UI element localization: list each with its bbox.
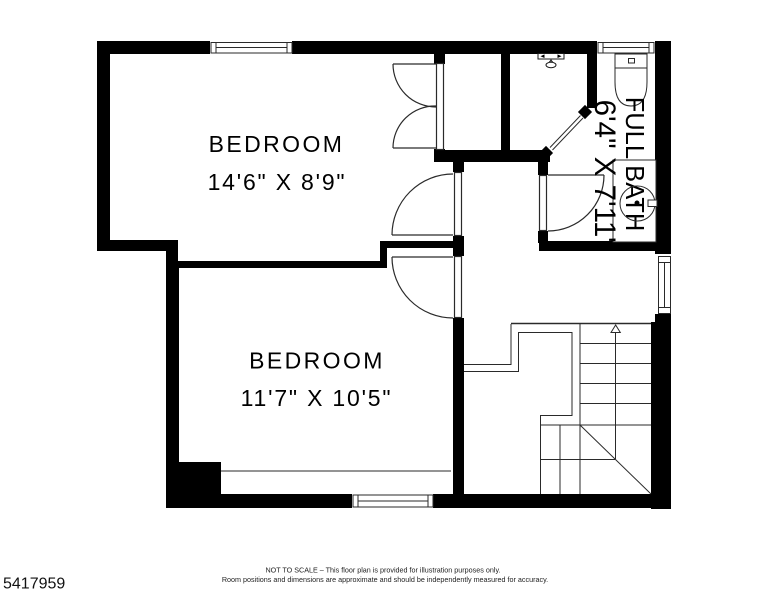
svg-text:BEDROOM: BEDROOM [209, 131, 345, 157]
svg-text:5417959: 5417959 [3, 576, 65, 593]
svg-text:11'7" X 10'5": 11'7" X 10'5" [241, 385, 393, 411]
svg-text:14'6" X 8'9": 14'6" X 8'9" [208, 169, 347, 195]
svg-text:Room positions and dimensions: Room positions and dimensions are approx… [222, 575, 548, 584]
svg-text:6'4" X 7'11": 6'4" X 7'11" [588, 100, 621, 248]
svg-text:NOT TO SCALE – This floor plan: NOT TO SCALE – This floor plan is provid… [265, 566, 500, 575]
svg-text:BEDROOM: BEDROOM [249, 348, 385, 374]
